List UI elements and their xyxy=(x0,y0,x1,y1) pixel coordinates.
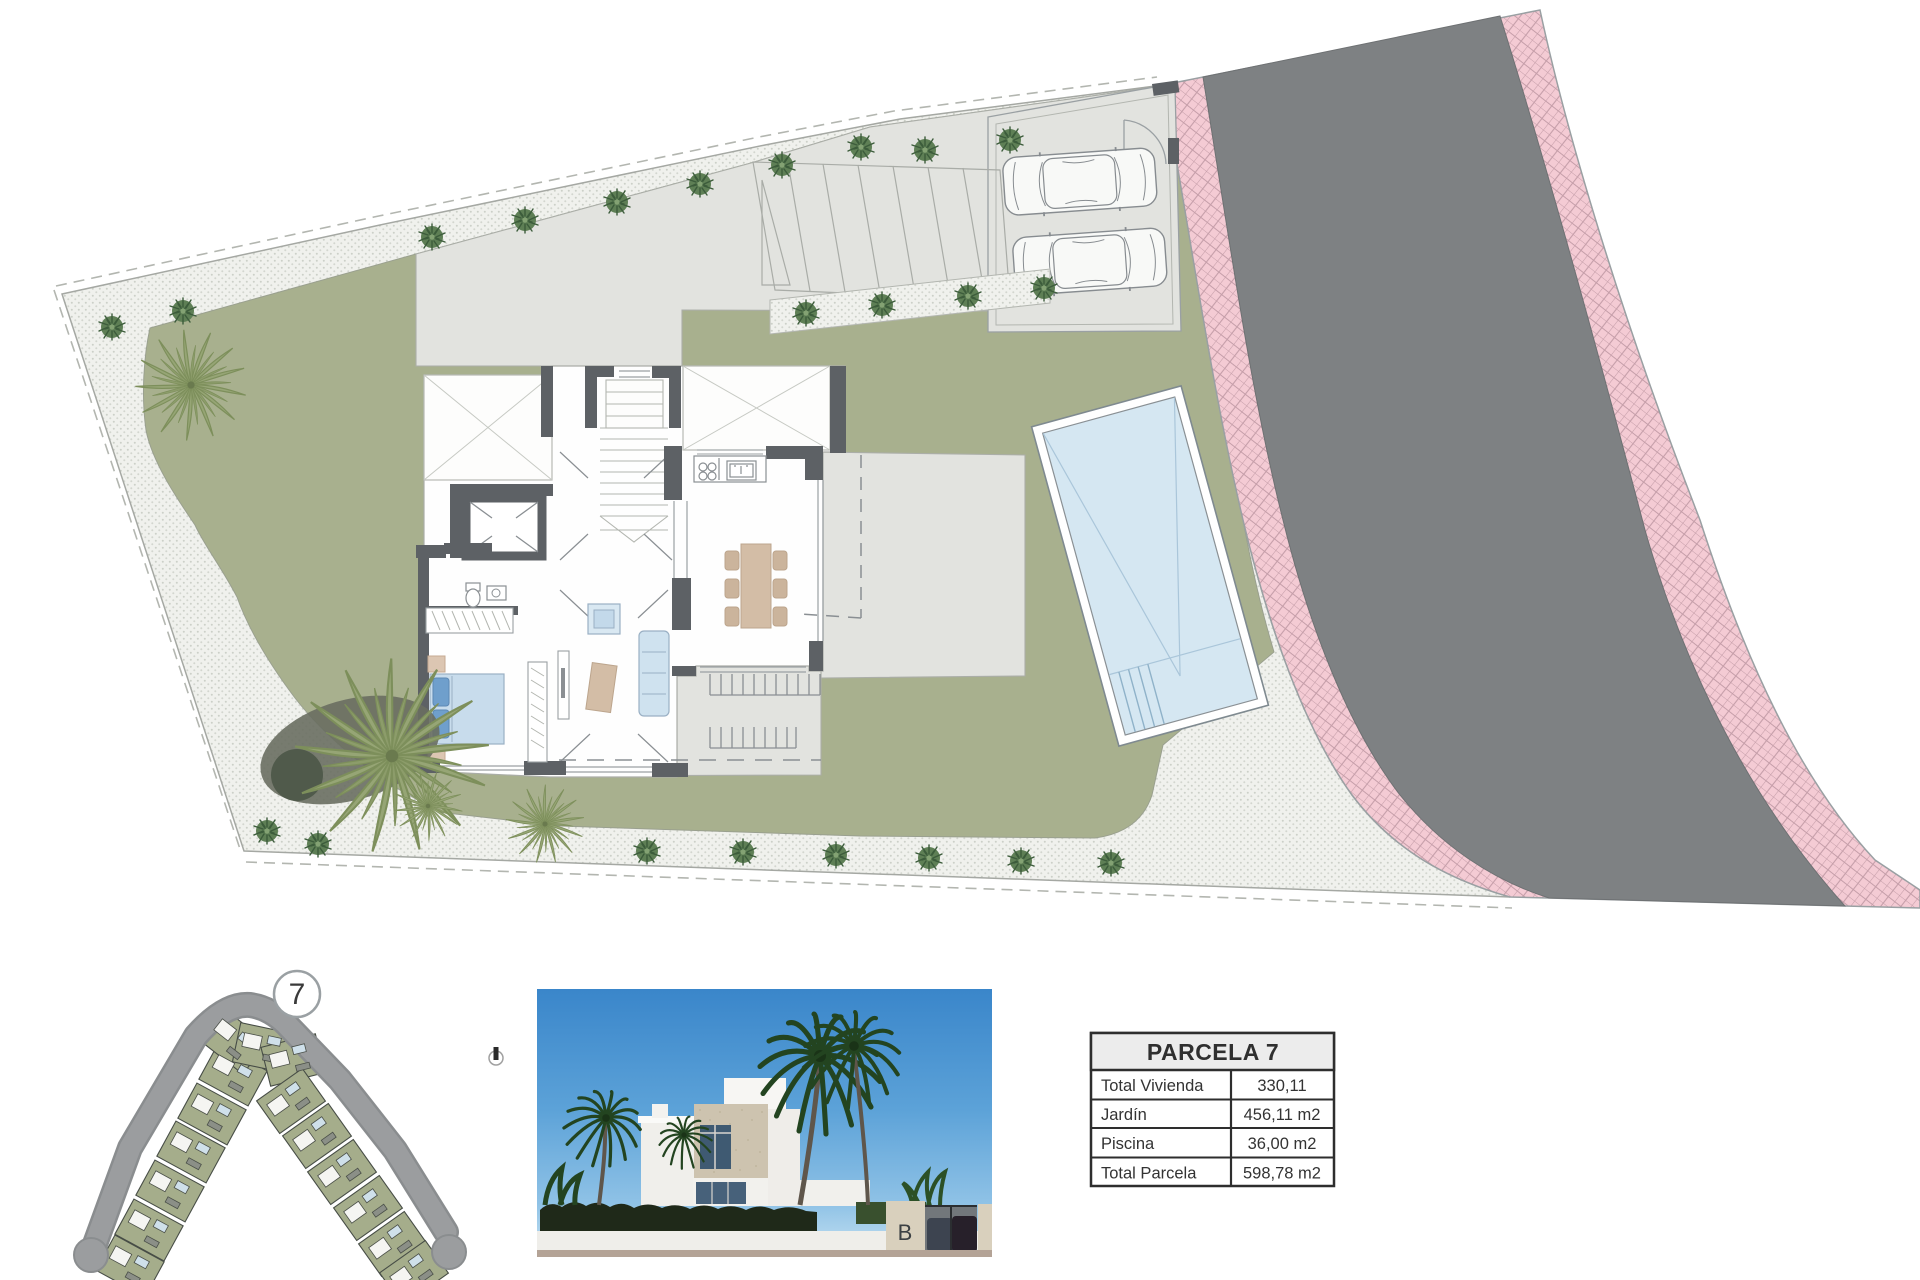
svg-text:B: B xyxy=(898,1220,913,1245)
svg-text:Jardín: Jardín xyxy=(1101,1106,1147,1124)
svg-text:Piscina: Piscina xyxy=(1101,1135,1155,1153)
svg-text:Total Parcela: Total Parcela xyxy=(1101,1165,1197,1183)
svg-text:330,11: 330,11 xyxy=(1257,1077,1306,1095)
svg-text:456,11 m2: 456,11 m2 xyxy=(1244,1106,1321,1124)
svg-text:598,78 m2: 598,78 m2 xyxy=(1243,1165,1321,1183)
svg-text:PARCELA 7: PARCELA 7 xyxy=(1147,1039,1279,1065)
svg-text:7: 7 xyxy=(289,978,306,1011)
svg-text:Total Vivienda: Total Vivienda xyxy=(1101,1077,1204,1095)
svg-text:36,00 m2: 36,00 m2 xyxy=(1248,1135,1317,1153)
